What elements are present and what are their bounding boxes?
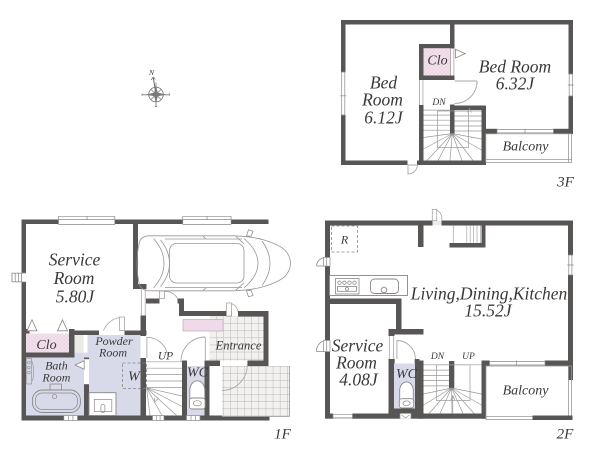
svg-text:Room: Room xyxy=(98,346,127,360)
svg-text:DN: DN xyxy=(430,352,445,362)
svg-text:Service: Service xyxy=(49,250,101,270)
svg-text:N: N xyxy=(148,68,155,77)
svg-text:Room: Room xyxy=(41,371,70,385)
svg-text:5.80J: 5.80J xyxy=(56,287,96,307)
svg-text:UP: UP xyxy=(462,352,475,362)
svg-text:R: R xyxy=(340,233,349,247)
svg-text:2F: 2F xyxy=(557,427,575,443)
svg-text:6.32J: 6.32J xyxy=(496,74,536,94)
svg-text:WC: WC xyxy=(187,366,209,381)
svg-text:Room: Room xyxy=(361,90,403,110)
svg-text:DN: DN xyxy=(431,98,446,108)
svg-text:Balcony: Balcony xyxy=(503,140,550,155)
svg-text:Entrance: Entrance xyxy=(215,339,262,353)
svg-text:15.52J: 15.52J xyxy=(464,301,512,321)
svg-text:Clo: Clo xyxy=(36,338,56,353)
svg-text:Room: Room xyxy=(53,268,95,288)
svg-text:6.12J: 6.12J xyxy=(364,108,404,128)
svg-text:UP: UP xyxy=(158,351,173,363)
svg-text:WC: WC xyxy=(396,367,418,382)
svg-text:1F: 1F xyxy=(274,427,292,443)
svg-text:3F: 3F xyxy=(556,175,575,191)
svg-text:Balcony: Balcony xyxy=(503,384,550,399)
svg-text:Clo: Clo xyxy=(427,54,447,69)
svg-text:W: W xyxy=(128,370,141,385)
svg-text:4.08J: 4.08J xyxy=(339,370,379,390)
